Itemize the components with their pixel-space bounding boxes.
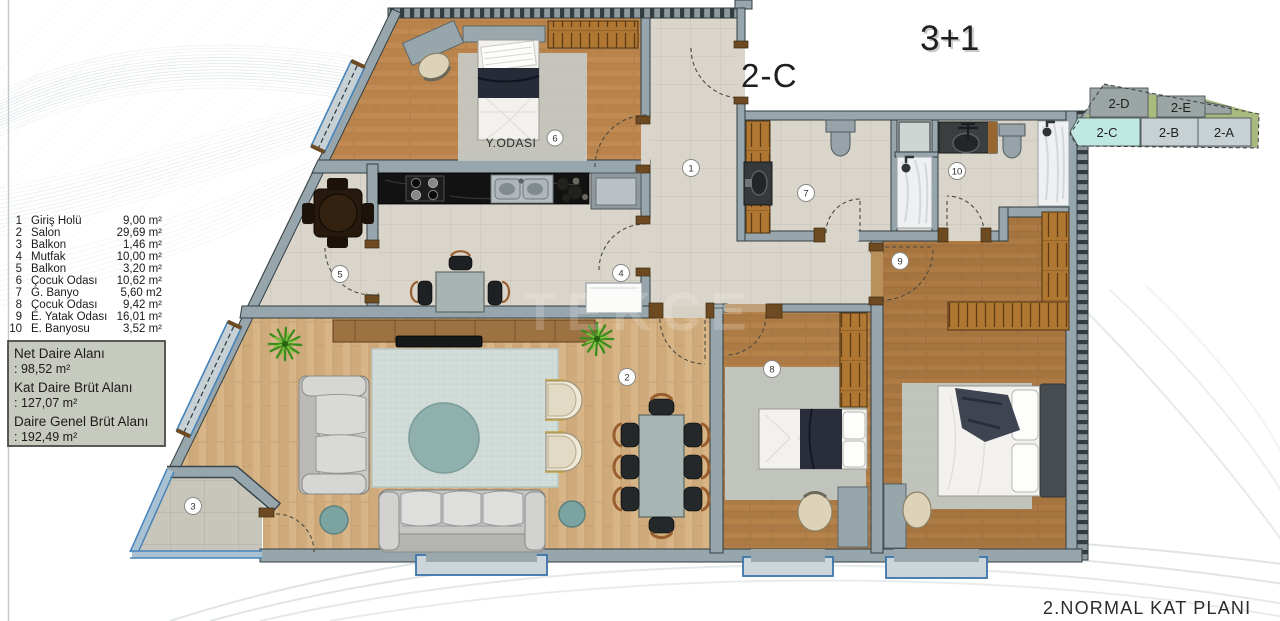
svg-text:2-C: 2-C	[741, 57, 798, 94]
svg-text:Balkon: Balkon	[31, 263, 66, 275]
svg-text:9: 9	[16, 311, 22, 323]
svg-text:Balkon: Balkon	[31, 239, 66, 251]
svg-text:Giriş Holü: Giriş Holü	[31, 215, 81, 227]
svg-text:1: 1	[688, 164, 693, 175]
svg-text:4: 4	[16, 251, 23, 263]
svg-text:Mutfak: Mutfak	[31, 251, 66, 263]
svg-text:8: 8	[769, 365, 774, 376]
svg-text:9,42 m²: 9,42 m²	[123, 299, 162, 311]
svg-text:10: 10	[952, 167, 963, 178]
svg-text:G. Banyo: G. Banyo	[31, 287, 79, 299]
svg-text:3: 3	[16, 239, 22, 251]
svg-text:2: 2	[16, 227, 22, 239]
svg-text:2-D: 2-D	[1109, 96, 1130, 111]
svg-text:2-E: 2-E	[1171, 100, 1192, 115]
svg-text:: 127,07 m²: : 127,07 m²	[14, 396, 77, 410]
svg-text:2-B: 2-B	[1159, 125, 1179, 140]
svg-text:2-C: 2-C	[1097, 125, 1118, 140]
svg-text:E. Banyosu: E. Banyosu	[31, 323, 90, 335]
svg-text:Salon: Salon	[31, 227, 60, 239]
svg-text:7: 7	[16, 287, 22, 299]
svg-text:1: 1	[16, 215, 22, 227]
svg-text:3: 3	[190, 502, 195, 513]
svg-text:E. Yatak Odası: E. Yatak Odası	[31, 311, 107, 323]
svg-text:8: 8	[16, 299, 22, 311]
svg-text:3,20 m²: 3,20 m²	[123, 263, 162, 275]
svg-text:Çocuk Odası: Çocuk Odası	[31, 299, 97, 311]
svg-text:9,00 m²: 9,00 m²	[123, 215, 162, 227]
svg-text:10,62 m²: 10,62 m²	[117, 275, 163, 287]
svg-text:Net Daire Alanı: Net Daire Alanı	[14, 346, 105, 361]
svg-text:7: 7	[803, 189, 808, 200]
svg-text:Kat Daire Brüt Alanı: Kat Daire Brüt Alanı	[14, 380, 133, 395]
svg-text:2-A: 2-A	[1214, 125, 1235, 140]
svg-text:9: 9	[897, 257, 902, 268]
svg-text:1,46 m²: 1,46 m²	[123, 239, 162, 251]
svg-text:5,60 m2: 5,60 m2	[120, 287, 162, 299]
svg-text:TEKCE: TEKCE	[523, 282, 756, 342]
svg-text:4: 4	[618, 269, 623, 280]
svg-text:2.NORMAL KAT PLANI: 2.NORMAL KAT PLANI	[1043, 598, 1251, 618]
svg-text:6: 6	[552, 134, 557, 145]
svg-text:10: 10	[9, 323, 22, 335]
svg-text:5: 5	[16, 263, 22, 275]
svg-text:: 192,49 m²: : 192,49 m²	[14, 430, 77, 444]
svg-text:6: 6	[16, 275, 22, 287]
svg-text:16,01 m²: 16,01 m²	[117, 311, 163, 323]
svg-text:3,52 m²: 3,52 m²	[123, 323, 162, 335]
svg-text:2: 2	[624, 373, 629, 384]
svg-text:10,00 m²: 10,00 m²	[117, 251, 163, 263]
svg-text:: 98,52 m²: : 98,52 m²	[14, 362, 70, 376]
svg-text:5: 5	[337, 270, 342, 281]
svg-text:Y.ODASI: Y.ODASI	[486, 136, 537, 150]
svg-text:3+1: 3+1	[920, 19, 979, 58]
svg-text:Çocuk Odası: Çocuk Odası	[31, 275, 97, 287]
svg-text:Daire Genel Brüt Alanı: Daire Genel Brüt Alanı	[14, 414, 148, 429]
svg-text:29,69 m²: 29,69 m²	[117, 227, 163, 239]
